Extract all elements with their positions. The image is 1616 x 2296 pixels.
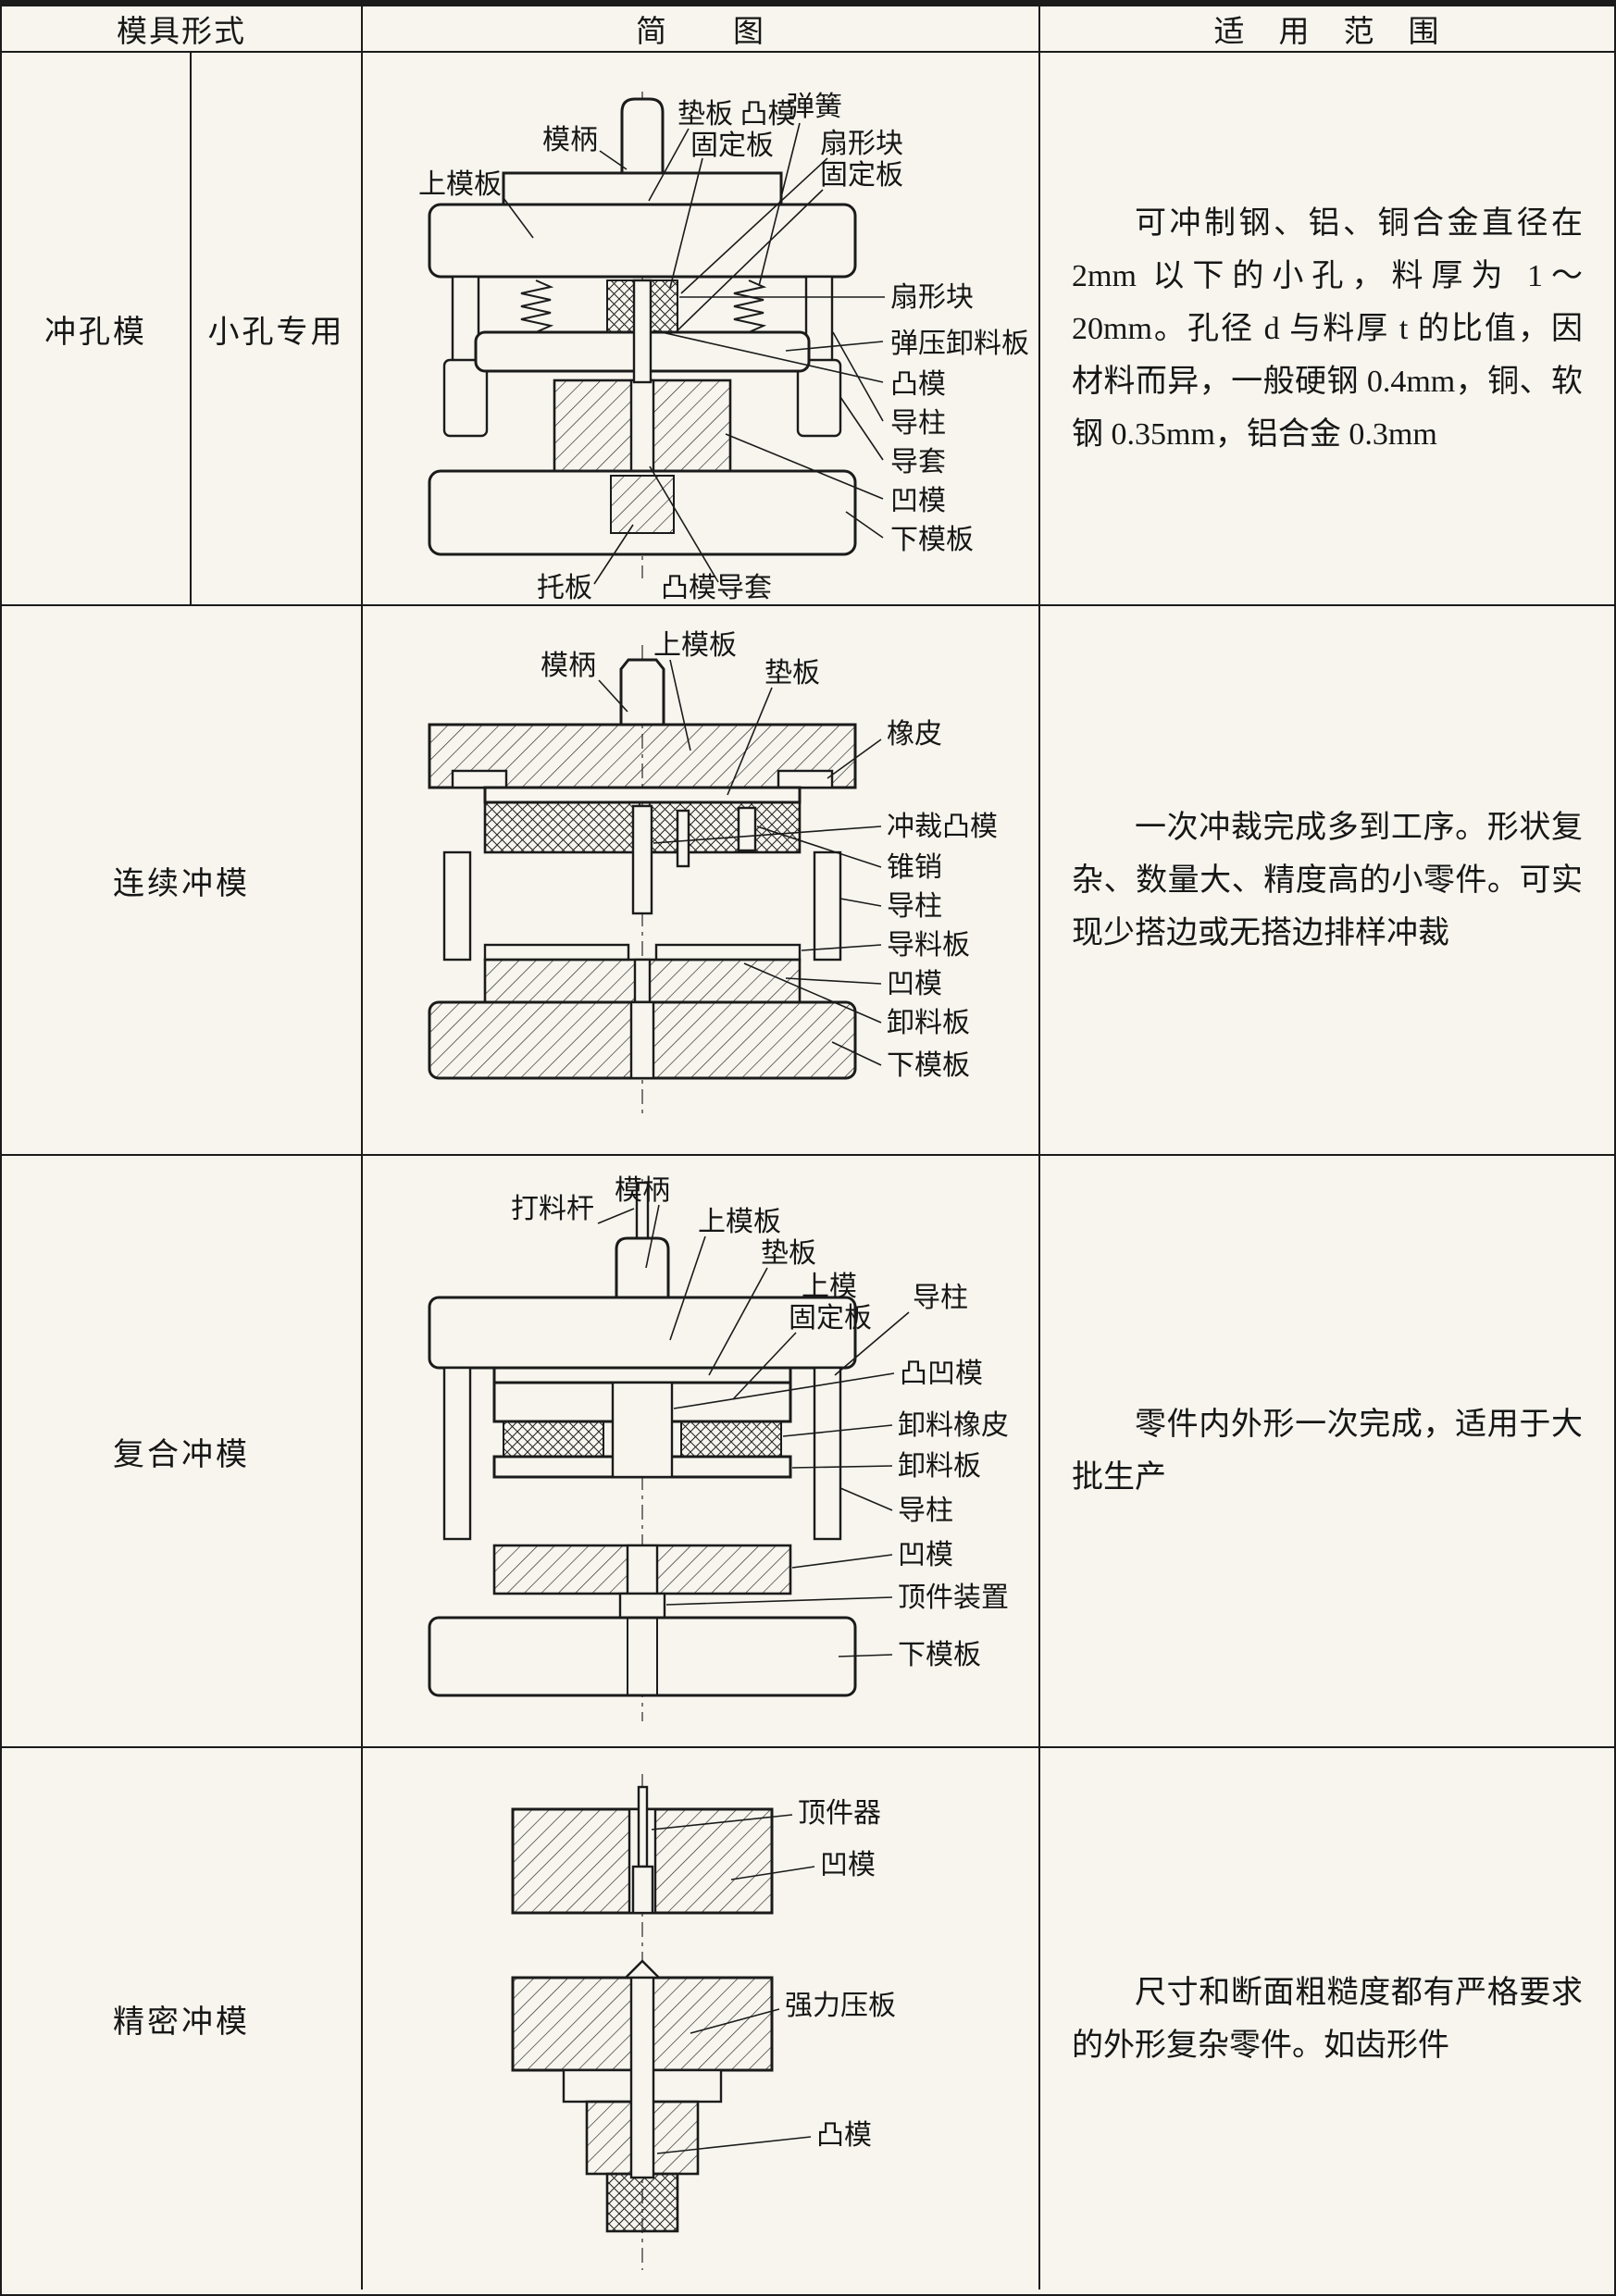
diagram-label: 橡皮 (887, 719, 942, 750)
diagram-label: 垫板 (761, 1238, 816, 1269)
diagram-label: 凸模 (890, 369, 946, 400)
diagram-label: 弹簧 (787, 92, 842, 122)
row3-diagram-cell: 打料杆 模柄 上模板 垫板 上模 固定板 导柱 凸凹模 卸料橡皮 卸料板 导柱 … (363, 1156, 1040, 1748)
diagram-label: 锥销 (887, 852, 942, 883)
row2-form-cell: 连续冲模 (2, 606, 363, 1156)
diagram-label: 导柱 (887, 891, 942, 922)
diagram-label: 凹模 (820, 1850, 876, 1880)
diagram-label: 冲裁凸模 (887, 812, 998, 842)
precision-die-diagram: 顶件器 凹模 强力压板 凸模 (365, 1756, 1037, 2283)
diagram-label: 卸料橡皮 (898, 1410, 1009, 1441)
row2-scope-cell: 一次冲裁完成多到工序。形状复杂、数量大、精度高的小零件。可实现少搭边或无搭边排样… (1040, 606, 1614, 1156)
diagram-label: 上模 (802, 1272, 857, 1302)
diagram-label: 上模板 (653, 630, 737, 661)
row4-scope-cell: 尺寸和断面粗糙度都有严格要求的外形复杂零件。如齿形件 (1040, 1748, 1614, 2290)
row2-scope-text: 一次冲裁完成多到工序。形状复杂、数量大、精度高的小零件。可实现少搭边或无搭边排样… (1040, 801, 1614, 960)
diagram-label: 垫板 (764, 658, 820, 689)
diagram-label: 卸料板 (898, 1451, 981, 1482)
row1-scope-text: 可冲制钢、铝、铜合金直径在 2mm 以下的小孔，料厚为 1～20mm。孔径 d … (1040, 197, 1614, 461)
diagram-label: 上模板 (418, 169, 502, 200)
header-diagram-cell: 简 图 (363, 6, 1040, 53)
diagram-label: 下模板 (890, 525, 974, 555)
diagram-label: 导柱 (913, 1283, 968, 1313)
diagram-label: 导套 (890, 447, 946, 478)
row3-form: 复合冲模 (113, 1429, 250, 1474)
diagram-label: 凸模 (816, 2120, 872, 2151)
row3-form-cell: 复合冲模 (2, 1156, 363, 1748)
diagram-label: 顶件装置 (898, 1582, 1009, 1613)
diagram-label: 模柄 (615, 1175, 670, 1206)
diagram-label: 上模板 (698, 1207, 781, 1237)
diagram-label: 打料杆 (511, 1194, 594, 1224)
row1-form-main: 冲孔模 (44, 306, 147, 352)
diagram-label: 模柄 (542, 125, 598, 155)
diagram-label: 垫板 凸模 (677, 99, 796, 130)
diagram-label: 模柄 (541, 651, 596, 681)
diagram-label: 托板 (537, 573, 592, 602)
row1-form-sub: 小孔专用 (208, 306, 345, 352)
die-type-table: 模具形式 简 图 适 用 范 围 冲孔模 小孔专用 (0, 0, 1616, 2296)
diagram-label: 强力压板 (785, 1991, 896, 2021)
row3-scope-text: 零件内外形一次完成，适用于大批生产 (1040, 1398, 1614, 1504)
header-form-cell: 模具形式 (2, 6, 363, 53)
diagram-label: 卸料板 (887, 1008, 970, 1038)
diagram-label: 导柱 (890, 408, 946, 439)
header-scope-cell: 适 用 范 围 (1040, 6, 1614, 53)
row2-form: 连续冲模 (113, 858, 250, 903)
diagram-label: 凹模 (890, 486, 946, 516)
row1-diagram-cell: 模柄 垫板 凸模 固定板 弹簧 扇形块 固定板 上模板 扇形块 弹压卸料板 凸模… (363, 53, 1040, 606)
diagram-label: 下模板 (898, 1640, 981, 1670)
row4-form: 精密冲模 (113, 1996, 250, 2042)
diagram-label: 扇形块 (820, 129, 903, 159)
row2-diagram-cell: 模柄 上模板 垫板 橡皮 冲裁凸模 锥销 导柱 导料板 凹模 卸料板 下模板 (363, 606, 1040, 1156)
diagram-label: 顶件器 (798, 1798, 881, 1829)
diagram-label: 固定板 (690, 130, 774, 161)
row4-scope-text: 尺寸和断面粗糙度都有严格要求的外形复杂零件。如齿形件 (1040, 1967, 1614, 2072)
progressive-die-diagram: 模柄 上模板 垫板 橡皮 冲裁凸模 锥销 导柱 导料板 凹模 卸料板 下模板 (365, 621, 1037, 1139)
diagram-label: 扇形块 (890, 282, 974, 313)
row4-form-cell: 精密冲模 (2, 1748, 363, 2290)
row1-form-sub-cell: 小孔专用 (192, 53, 363, 606)
diagram-label: 凸凹模 (900, 1359, 983, 1389)
diagram-label: 弹压卸料板 (890, 329, 1029, 359)
diagram-label: 固定板 (820, 160, 903, 191)
small-hole-punch-die-diagram: 模柄 垫板 凸模 固定板 弹簧 扇形块 固定板 上模板 扇形块 弹压卸料板 凸模… (365, 55, 1037, 602)
diagram-label: 下模板 (887, 1050, 970, 1081)
diagram-label: 固定板 (789, 1303, 872, 1334)
row3-scope-cell: 零件内外形一次完成，适用于大批生产 (1040, 1156, 1614, 1748)
header-diagram-label: 简 图 (636, 6, 765, 51)
row1-scope-cell: 可冲制钢、铝、铜合金直径在 2mm 以下的小孔，料厚为 1～20mm。孔径 d … (1040, 53, 1614, 606)
diagram-label: 导料板 (887, 930, 970, 961)
diagram-label: 凹模 (887, 969, 942, 999)
row1-form-main-cell: 冲孔模 (2, 53, 192, 606)
row4-diagram-cell: 顶件器 凹模 强力压板 凸模 (363, 1748, 1040, 2290)
diagram-label: 导柱 (898, 1496, 953, 1526)
diagram-label: 凹模 (898, 1540, 953, 1570)
header-scope-label: 适 用 范 围 (1214, 6, 1441, 51)
header-form-label: 模具形式 (117, 6, 246, 51)
compound-die-diagram: 打料杆 模柄 上模板 垫板 上模 固定板 导柱 凸凹模 卸料橡皮 卸料板 导柱 … (365, 1157, 1037, 1745)
diagram-label: 凸模导套 (661, 573, 772, 602)
